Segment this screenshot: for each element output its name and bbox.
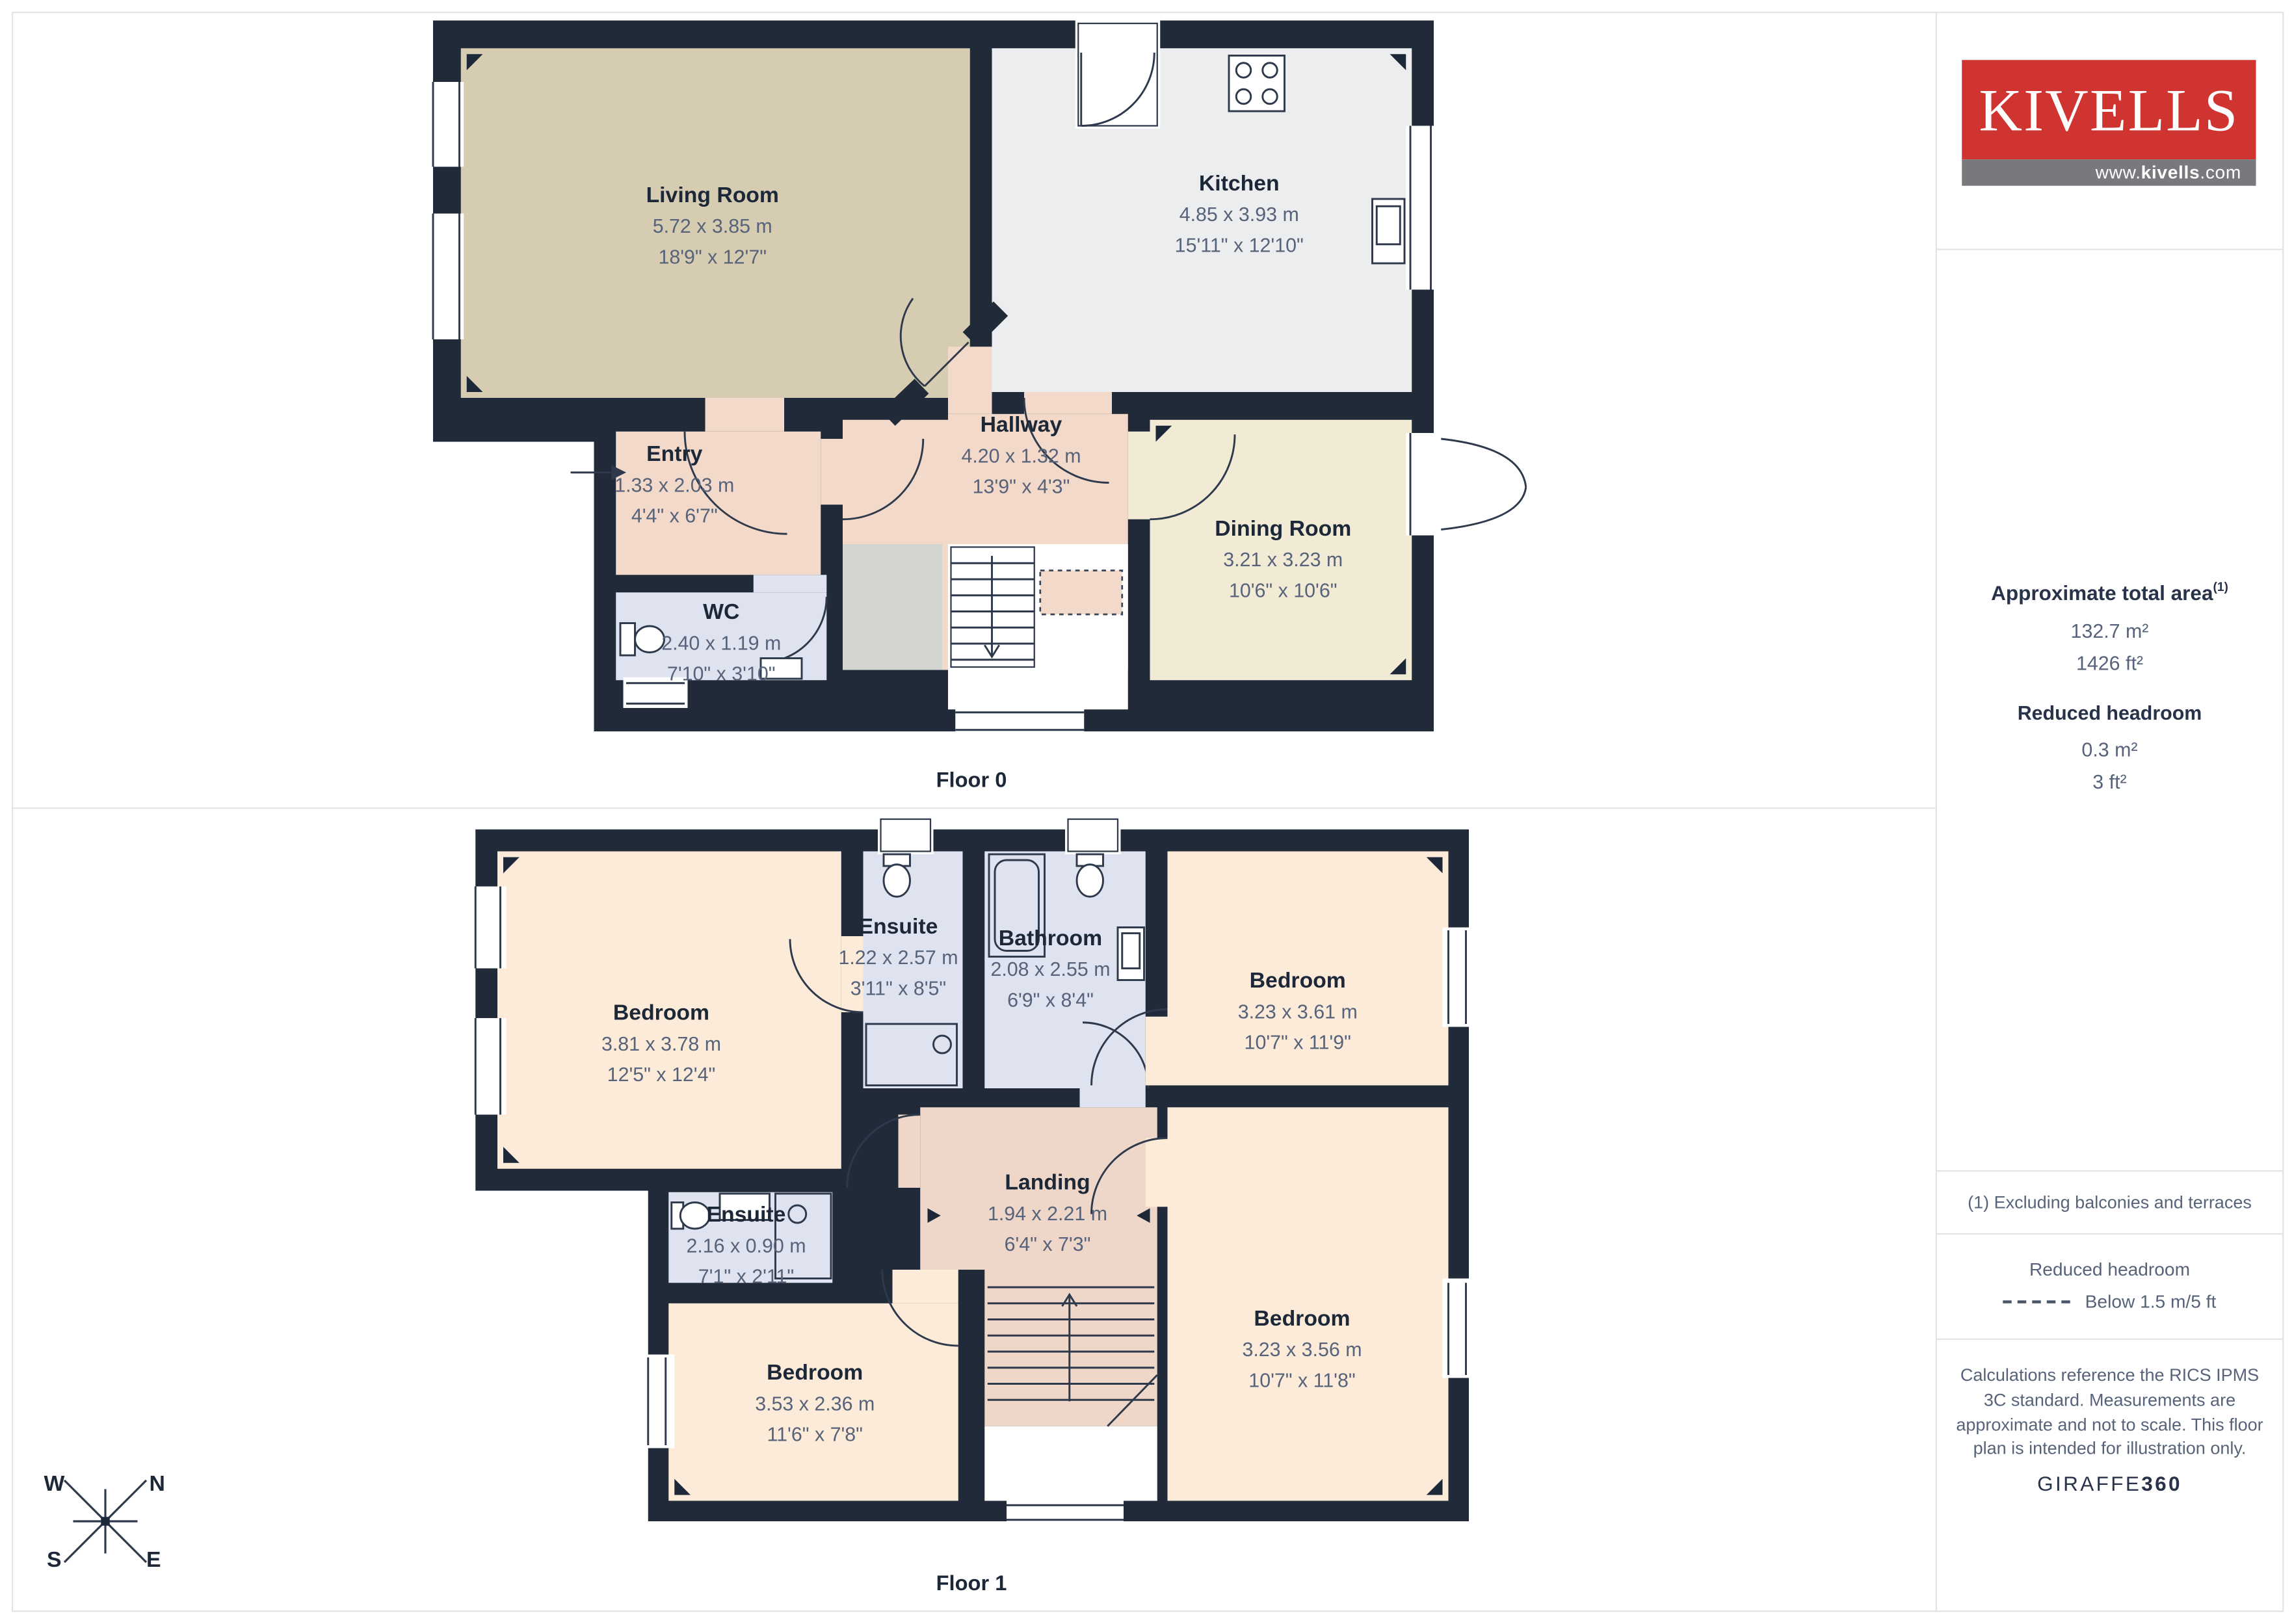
room-label-ensuite-top: Ensuite 1.22 x 2.57 m 3'11" x 8'5" [838,911,958,1004]
dashed-line-icon [2003,1300,2071,1303]
floor1-stairs [984,1270,1157,1426]
reduced-headroom-imperial: 3 ft² [1937,766,2282,799]
compass-icon [64,1480,146,1562]
floor0-front-door-recess [1075,21,1161,129]
reduced-headroom-title: Reduced headroom [1937,702,2282,724]
room-label-entry: Entry 1.33 x 2.03 m 4'4" x 6'7" [614,439,734,532]
page-border-bottom [12,1610,2282,1612]
floor1-label: Floor 1 [936,1573,1007,1596]
disclaimer: Calculations reference the RICS IPMS 3C … [1937,1363,2282,1461]
compass-east: E [146,1548,161,1573]
kivells-logo-url: www.kivells.com [1962,159,2256,186]
kivells-logo-wordmark: KIVELLS [1962,60,2256,159]
page-border-right [2282,12,2284,1612]
compass-south: S [47,1548,62,1573]
room-label-landing: Landing 1.94 x 2.21 m 6'4" x 7'3" [988,1168,1107,1261]
legend-title: Reduced headroom [1937,1259,2282,1280]
room-label-ensuite-small: Ensuite 2.16 x 0.90 m 7'1" x 2'11" [686,1199,806,1292]
compass-north: N [150,1472,165,1497]
floor1-stairs-void [984,1426,1157,1501]
floor0-gray-block [843,544,942,670]
room-label-bathroom: Bathroom 2.08 x 2.55 m 6'9" x 8'4" [990,923,1110,1016]
room-label-wc: WC 2.40 x 1.19 m 7'10" x 3'10" [661,597,781,690]
area-footnote: (1) Excluding balconies and terraces [1937,1192,2282,1213]
sidebar-sec-divider-3 [1937,1233,2282,1235]
floor0-label: Floor 0 [936,770,1007,793]
legend-item: Below 1.5 m/5 ft [2085,1292,2217,1313]
sidebar-sec-divider-4 [1937,1339,2282,1340]
page-border-left [12,12,13,1612]
room-hallway-upper [948,347,992,414]
room-label-bedroom-tr: Bedroom 3.23 x 3.61 m 10'7" x 11'9" [1238,965,1358,1058]
total-area-metric: 132.7 m² [1937,616,2282,648]
total-area-title: Approximate total area(1) [1937,579,2282,607]
floor0-stairs-exit [948,670,1128,710]
room-label-bedroom-br: Bedroom 3.23 x 3.56 m 10'7" x 11'8" [1242,1303,1362,1396]
room-label-bedroom-tl: Bedroom 3.81 x 3.78 m 12'5" x 12'4" [601,998,721,1091]
floors-divider [12,807,1936,809]
compass-west: W [44,1472,65,1497]
kivells-logo: KIVELLS www.kivells.com [1962,60,2256,186]
room-label-bedroom-bl: Bedroom 3.53 x 2.36 m 11'6" x 7'8" [755,1357,875,1450]
room-label-dining-room: Dining Room 3.21 x 3.23 m 10'6" x 10'6" [1215,514,1351,607]
floor0-stairs [948,544,1128,670]
giraffe360-credit: GIRAFFE360 [1937,1472,2282,1495]
reduced-headroom-metric: 0.3 m² [1937,735,2282,767]
sidebar-sec-divider-1 [1937,249,2282,250]
room-label-kitchen: Kitchen 4.85 x 3.93 m 15'11" x 12'10" [1175,168,1304,261]
total-area-imperial: 1426 ft² [1937,648,2282,681]
room-label-living-room: Living Room 5.72 x 3.85 m 18'9" x 12'7" [646,180,779,273]
room-label-hallway: Hallway 4.20 x 1.32 m 13'9" x 4'3" [961,410,1081,503]
page-border-top [12,12,2282,13]
floorplan-page: W N S E Living Room 5.72 x 3.85 m 18'9" … [0,0,2294,1623]
sidebar-sec-divider-2 [1937,1170,2282,1172]
legend-row: Below 1.5 m/5 ft [1937,1292,2282,1313]
